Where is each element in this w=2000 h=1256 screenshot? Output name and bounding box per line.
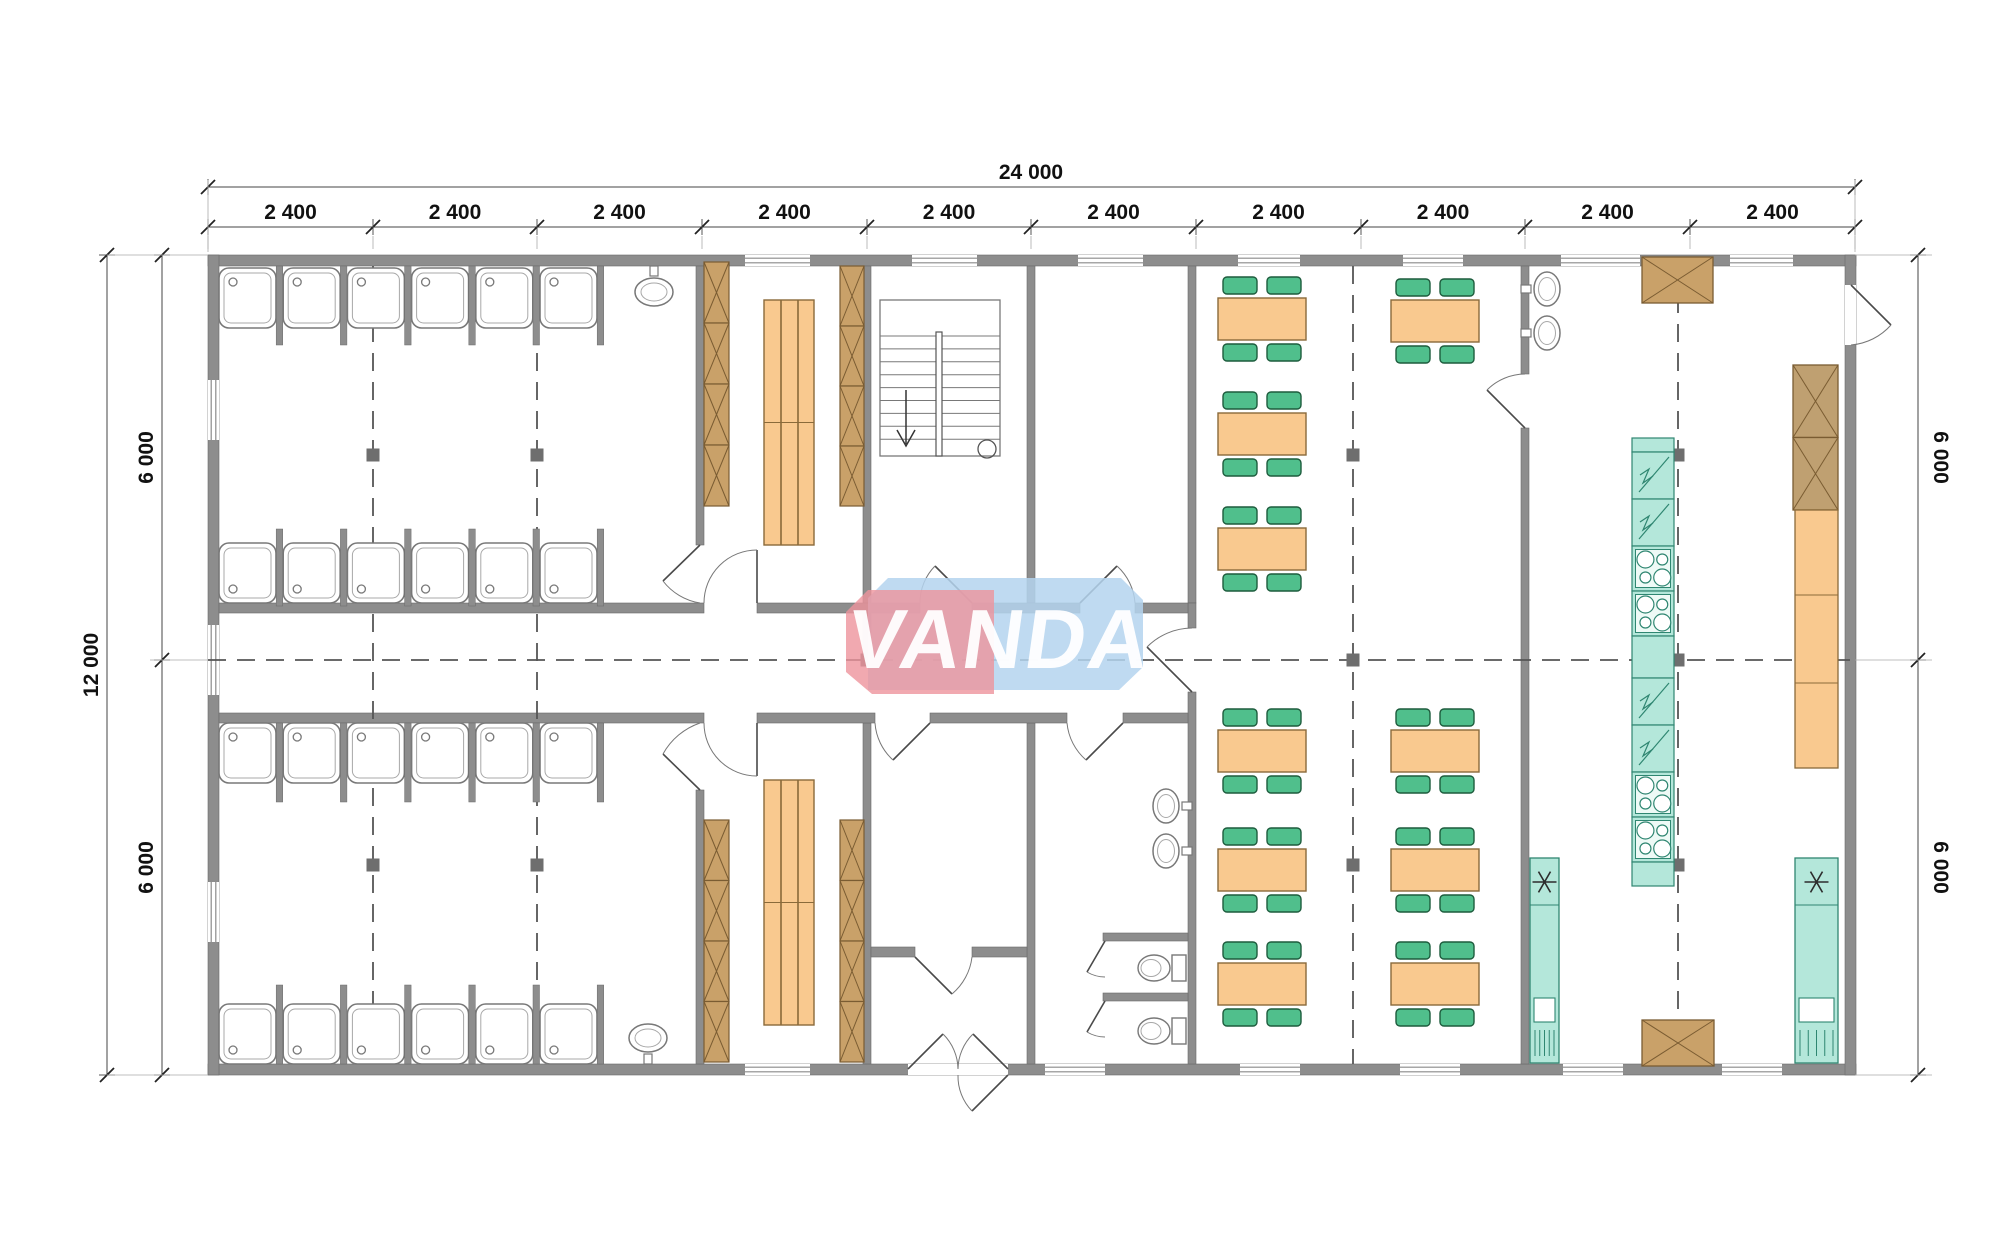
shower-stall — [412, 268, 469, 328]
structural-column — [531, 449, 544, 462]
washbasin-tap — [1182, 847, 1192, 855]
door-leaf — [972, 1075, 1008, 1111]
burner-icon — [1640, 617, 1651, 628]
island-panel — [1632, 438, 1674, 452]
shower-stall — [347, 723, 404, 783]
washbasin — [1153, 834, 1192, 868]
shower-stall — [347, 543, 404, 603]
chair — [1267, 507, 1301, 524]
structural-column — [367, 859, 380, 872]
chair — [1267, 392, 1301, 409]
window — [1045, 1064, 1105, 1075]
dimension-segment-label: 2 400 — [1581, 201, 1634, 224]
door-swing-arc — [1087, 972, 1105, 977]
dining-set — [1218, 942, 1306, 1026]
dining-table — [1218, 963, 1306, 1005]
locker-cabinet — [704, 262, 729, 506]
exterior-wall — [1845, 255, 1856, 1075]
burner-icon — [1637, 551, 1654, 568]
tall-cabinet — [1793, 365, 1838, 510]
window — [912, 255, 977, 266]
kitchen-island — [1632, 438, 1674, 886]
chair — [1396, 1009, 1430, 1026]
stall-partition — [597, 723, 604, 802]
counter-top — [1795, 510, 1838, 768]
burner-icon — [1654, 795, 1671, 812]
interior-wall — [871, 947, 915, 957]
chair — [1267, 277, 1301, 294]
sink-basin — [1534, 998, 1555, 1022]
chair — [1440, 776, 1474, 793]
cold-storage-unit — [1530, 858, 1559, 1063]
dining-table — [1218, 413, 1306, 455]
dimension-segment-label: 2 400 — [923, 201, 976, 224]
dimension-segment-label: 6 000 — [1929, 431, 1952, 484]
dimension-total-top: 24 000 — [999, 161, 1063, 184]
stall-partition — [276, 266, 283, 345]
door-opening — [1845, 285, 1856, 345]
chair — [1267, 344, 1301, 361]
structural-column — [531, 859, 544, 872]
chair — [1223, 709, 1257, 726]
interior-wall — [696, 790, 704, 1064]
chair — [1440, 942, 1474, 959]
burner-icon — [1637, 596, 1654, 613]
chair — [1440, 279, 1474, 296]
burner-icon — [1657, 780, 1668, 791]
dining-set — [1391, 709, 1479, 793]
shower-stall — [412, 723, 469, 783]
interior-wall — [1521, 266, 1529, 374]
door — [875, 723, 930, 760]
washbasin-tap — [1182, 802, 1192, 810]
chair — [1396, 895, 1430, 912]
shower-stall — [412, 543, 469, 603]
stall-partition — [276, 985, 283, 1064]
interior-wall — [757, 713, 875, 723]
shower-stall — [540, 1004, 597, 1064]
dimension-segment-label: 2 400 — [264, 201, 317, 224]
vanda-watermark: VANDA — [842, 578, 1158, 694]
toilet-bowl — [1138, 955, 1170, 981]
interior-wall — [1188, 692, 1196, 1064]
chair — [1396, 942, 1430, 959]
toilet-bowl — [1138, 1018, 1170, 1044]
shower-stall — [476, 723, 533, 783]
chair — [1223, 1009, 1257, 1026]
cold-storage-unit — [1795, 858, 1838, 1063]
window — [1722, 1064, 1782, 1075]
burner-icon — [1637, 822, 1654, 839]
shower-stall — [540, 543, 597, 603]
door — [958, 1075, 1008, 1111]
door-leaf — [1087, 941, 1105, 972]
chair — [1267, 942, 1301, 959]
window — [1078, 255, 1143, 266]
window — [208, 882, 219, 942]
toilet — [1138, 1018, 1186, 1044]
ventilation-shaft — [1642, 257, 1713, 303]
door — [1487, 374, 1525, 428]
toilet — [1138, 955, 1186, 981]
dimension-segment-label: 2 400 — [1252, 201, 1305, 224]
chair — [1223, 895, 1257, 912]
shower-stall — [540, 268, 597, 328]
toilet-tank — [1172, 955, 1186, 981]
stall-partition — [597, 985, 604, 1064]
dining-set — [1391, 279, 1479, 363]
watermark-text: VANDA — [842, 592, 1158, 686]
door — [1087, 941, 1105, 977]
interior-wall — [1103, 993, 1188, 1001]
chair — [1396, 828, 1430, 845]
door — [663, 723, 700, 790]
dimension-segment-label: 6 000 — [135, 431, 158, 484]
burner-icon — [1637, 777, 1654, 794]
chair — [1223, 942, 1257, 959]
chair — [1267, 459, 1301, 476]
washbasin — [629, 1024, 667, 1064]
door-swing-arc — [704, 723, 757, 776]
kitchen-counter — [1795, 510, 1838, 768]
window — [1403, 255, 1463, 266]
shower-stall — [219, 723, 276, 783]
chair — [1267, 776, 1301, 793]
dimension-segment-label: 2 400 — [1417, 201, 1470, 224]
door-swing-arc — [952, 957, 972, 994]
dining-set — [1218, 709, 1306, 793]
interior-wall — [1188, 266, 1196, 603]
door-swing-arc — [958, 1075, 972, 1111]
stall-partition — [405, 266, 412, 345]
toilet-tank — [1172, 1018, 1186, 1044]
dimension-total-left: 12 000 — [80, 633, 103, 697]
window — [1238, 255, 1300, 266]
chair — [1223, 507, 1257, 524]
door-leaf — [663, 754, 700, 790]
dining-table — [1218, 730, 1306, 772]
dining-table — [1391, 963, 1479, 1005]
burner-icon — [1654, 614, 1671, 631]
interior-wall — [930, 713, 1067, 723]
stall-partition — [469, 723, 476, 802]
washbasin-tap — [650, 266, 658, 276]
dimension-segment-label: 2 400 — [429, 201, 482, 224]
burner-icon — [1657, 825, 1668, 836]
interior-wall — [1123, 713, 1188, 723]
stall-partition — [405, 985, 412, 1064]
door-leaf — [1851, 285, 1891, 325]
chair — [1223, 344, 1257, 361]
chair — [1223, 459, 1257, 476]
shower-stall — [283, 543, 340, 603]
dimension-segment-label: 2 400 — [1087, 201, 1140, 224]
stair-rail — [936, 332, 942, 456]
dining-set — [1218, 828, 1306, 912]
chair — [1267, 895, 1301, 912]
door-swing-arc — [875, 723, 893, 760]
interior-wall — [1188, 603, 1196, 628]
interior-wall — [219, 603, 704, 613]
dining-table — [1391, 730, 1479, 772]
window — [1561, 255, 1640, 266]
ventilation-shaft — [1642, 1020, 1714, 1066]
shower-stall — [347, 1004, 404, 1064]
window — [1563, 1064, 1623, 1075]
floor-plan-drawing: VANDA 24 000 12 000 2 4002 4002 4002 400… — [0, 0, 2000, 1256]
door-swing-arc — [663, 581, 700, 603]
washbasin-tap — [644, 1054, 652, 1064]
dimension-segment-label: 6 000 — [1929, 841, 1952, 894]
chair — [1223, 574, 1257, 591]
chair — [1440, 828, 1474, 845]
door-leaf — [663, 545, 700, 581]
chair — [1223, 277, 1257, 294]
dimension-segment-label: 2 400 — [1746, 201, 1799, 224]
structural-column — [1347, 654, 1360, 667]
door — [704, 723, 757, 776]
locker-cabinet — [704, 820, 729, 1062]
stall-partition — [533, 723, 540, 802]
chair — [1396, 346, 1430, 363]
stall-partition — [533, 529, 540, 606]
interior-wall — [972, 947, 1027, 957]
stall-partition — [340, 529, 347, 606]
dining-table — [1218, 298, 1306, 340]
door-swing-arc — [1487, 374, 1525, 390]
burner-icon — [1654, 569, 1671, 586]
stall-partition — [533, 266, 540, 345]
door-swing-arc — [1067, 723, 1086, 760]
locker-cabinet — [840, 820, 864, 1062]
door — [663, 545, 700, 603]
dining-set — [1391, 828, 1479, 912]
stall-partition — [340, 985, 347, 1064]
door-leaf — [1087, 1001, 1105, 1032]
floor-plan-canvas: VANDA 24 000 12 000 2 4002 4002 4002 400… — [0, 0, 2000, 1256]
door — [1087, 1001, 1105, 1037]
chair — [1267, 828, 1301, 845]
shower-stall — [476, 543, 533, 603]
dining-table — [1391, 849, 1479, 891]
burner-icon — [1640, 798, 1651, 809]
door — [915, 957, 972, 994]
stall-partition — [469, 985, 476, 1064]
stall-partition — [469, 266, 476, 345]
door-leaf — [915, 957, 952, 994]
chair — [1396, 776, 1430, 793]
burner-icon — [1657, 554, 1668, 565]
stall-partition — [276, 723, 283, 802]
interior-wall — [1027, 723, 1035, 1064]
dining-table — [1218, 528, 1306, 570]
interior-wall — [1103, 933, 1188, 941]
shower-stall — [219, 1004, 276, 1064]
chair — [1223, 776, 1257, 793]
locker-cabinet — [840, 266, 864, 506]
stall-partition — [597, 266, 604, 345]
dimension-segment-label: 2 400 — [593, 201, 646, 224]
structural-column — [1347, 859, 1360, 872]
chair — [1440, 709, 1474, 726]
window — [745, 1064, 810, 1075]
stall-partition — [405, 723, 412, 802]
door-swing-arc — [704, 550, 757, 603]
bench — [764, 300, 814, 545]
window — [1400, 1064, 1460, 1075]
shower-stall — [219, 543, 276, 603]
shower-stall — [219, 268, 276, 328]
shower-stall — [476, 268, 533, 328]
dimension-segment-label: 2 400 — [758, 201, 811, 224]
stall-partition — [340, 723, 347, 802]
shower-stall — [412, 1004, 469, 1064]
door-leaf — [1487, 390, 1525, 428]
shower-stall — [283, 1004, 340, 1064]
door — [704, 550, 757, 603]
shower-stall — [283, 268, 340, 328]
washbasin-tap — [1521, 285, 1531, 293]
shower-stall — [540, 723, 597, 783]
window — [1240, 1064, 1300, 1075]
burner-icon — [1640, 843, 1651, 854]
sink-basin — [1799, 998, 1834, 1022]
washbasin — [1153, 789, 1192, 823]
burner-icon — [1640, 572, 1651, 583]
stall-partition — [276, 529, 283, 606]
door-leaf — [893, 723, 930, 760]
stall-partition — [405, 529, 412, 606]
window — [208, 380, 219, 440]
stall-partition — [340, 266, 347, 345]
burner-icon — [1657, 599, 1668, 610]
structural-column — [1347, 449, 1360, 462]
chair — [1440, 1009, 1474, 1026]
chair — [1396, 709, 1430, 726]
dining-set — [1218, 392, 1306, 476]
dining-set — [1391, 942, 1479, 1026]
door-leaf — [1086, 723, 1123, 760]
dining-table — [1218, 849, 1306, 891]
interior-wall — [219, 713, 704, 723]
shower-stall — [283, 723, 340, 783]
staircase — [880, 300, 1000, 458]
window — [1730, 255, 1793, 266]
interior-wall — [1521, 428, 1529, 1064]
dimension-segment-label: 6 000 — [135, 841, 158, 894]
burner-icon — [1654, 840, 1671, 857]
door — [1851, 285, 1891, 345]
chair — [1267, 574, 1301, 591]
door-leaf — [1147, 647, 1192, 692]
stall-partition — [533, 985, 540, 1064]
island-panel — [1632, 862, 1674, 886]
stall-partition — [597, 529, 604, 606]
shower-stall — [476, 1004, 533, 1064]
stall-partition — [469, 529, 476, 606]
window — [745, 255, 810, 266]
structural-column — [367, 449, 380, 462]
door-swing-arc — [1087, 1032, 1105, 1037]
chair — [1440, 895, 1474, 912]
door-swing-arc — [1147, 628, 1192, 647]
chair — [1267, 709, 1301, 726]
chair — [1223, 392, 1257, 409]
dining-set — [1218, 277, 1306, 361]
door-swing-arc — [663, 723, 700, 754]
chair — [1267, 1009, 1301, 1026]
door-swing-arc — [1851, 325, 1891, 345]
interior-wall — [1027, 266, 1035, 603]
shower-stall — [347, 268, 404, 328]
interior-wall — [696, 266, 704, 545]
chair — [1440, 346, 1474, 363]
bench — [764, 780, 814, 1025]
dining-table — [1391, 300, 1479, 342]
chair — [1396, 279, 1430, 296]
washbasin-tap — [1521, 329, 1531, 337]
island-panel — [1632, 636, 1674, 678]
washbasin — [635, 266, 673, 306]
dining-set — [1218, 507, 1306, 591]
chair — [1223, 828, 1257, 845]
door — [1067, 723, 1123, 760]
